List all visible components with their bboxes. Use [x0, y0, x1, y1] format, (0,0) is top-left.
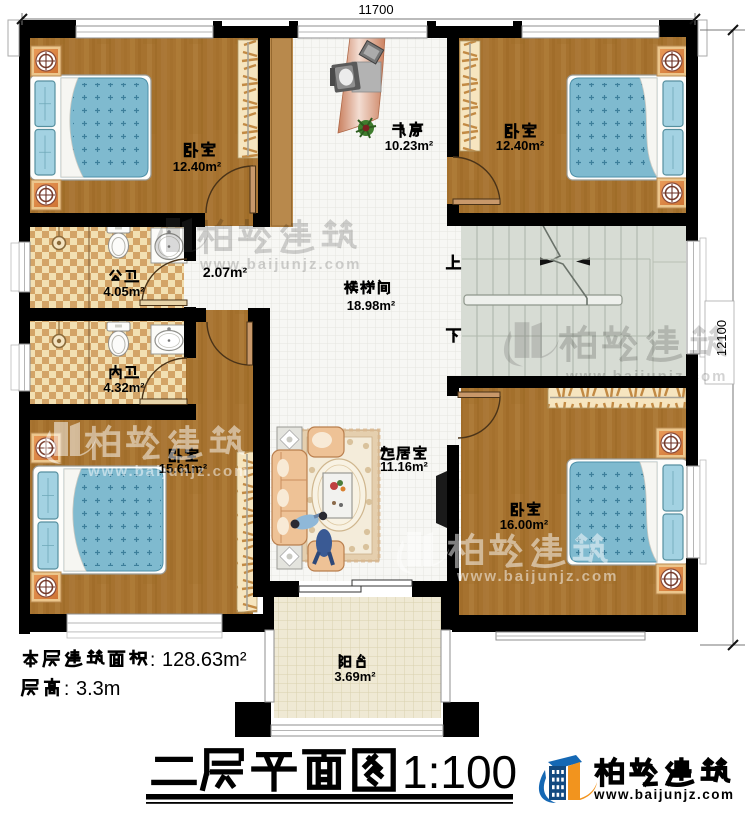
- svg-text:12.40m²: 12.40m²: [173, 159, 222, 174]
- svg-text:128.63m²: 128.63m²: [162, 649, 247, 671]
- svg-text:4.05m²: 4.05m²: [103, 284, 145, 299]
- svg-text:www.baijunjz.com: www.baijunjz.com: [593, 787, 735, 802]
- svg-text:16.00m²: 16.00m²: [500, 517, 549, 532]
- svg-text:4.32m²: 4.32m²: [103, 380, 145, 395]
- svg-text:3.3m: 3.3m: [76, 678, 120, 700]
- svg-text:www.baijunjz.com: www.baijunjz.com: [87, 463, 249, 480]
- svg-text:www.baijunjz.com: www.baijunjz.com: [456, 568, 618, 585]
- svg-text:3.69m²: 3.69m²: [334, 669, 376, 684]
- svg-text:www.baijunjz.com: www.baijunjz.com: [199, 256, 361, 273]
- svg-text::: :: [150, 650, 155, 671]
- svg-text:11.16m²: 11.16m²: [380, 459, 428, 474]
- svg-text:1:100: 1:100: [402, 746, 517, 798]
- svg-text:www.baijunjz.com: www.baijunjz.com: [565, 368, 727, 385]
- svg-text:10.23m²: 10.23m²: [385, 138, 434, 153]
- svg-text::: :: [64, 679, 69, 700]
- svg-text:12.40m²: 12.40m²: [496, 138, 545, 153]
- svg-text:11700: 11700: [358, 2, 393, 17]
- svg-text:18.98m²: 18.98m²: [347, 298, 396, 313]
